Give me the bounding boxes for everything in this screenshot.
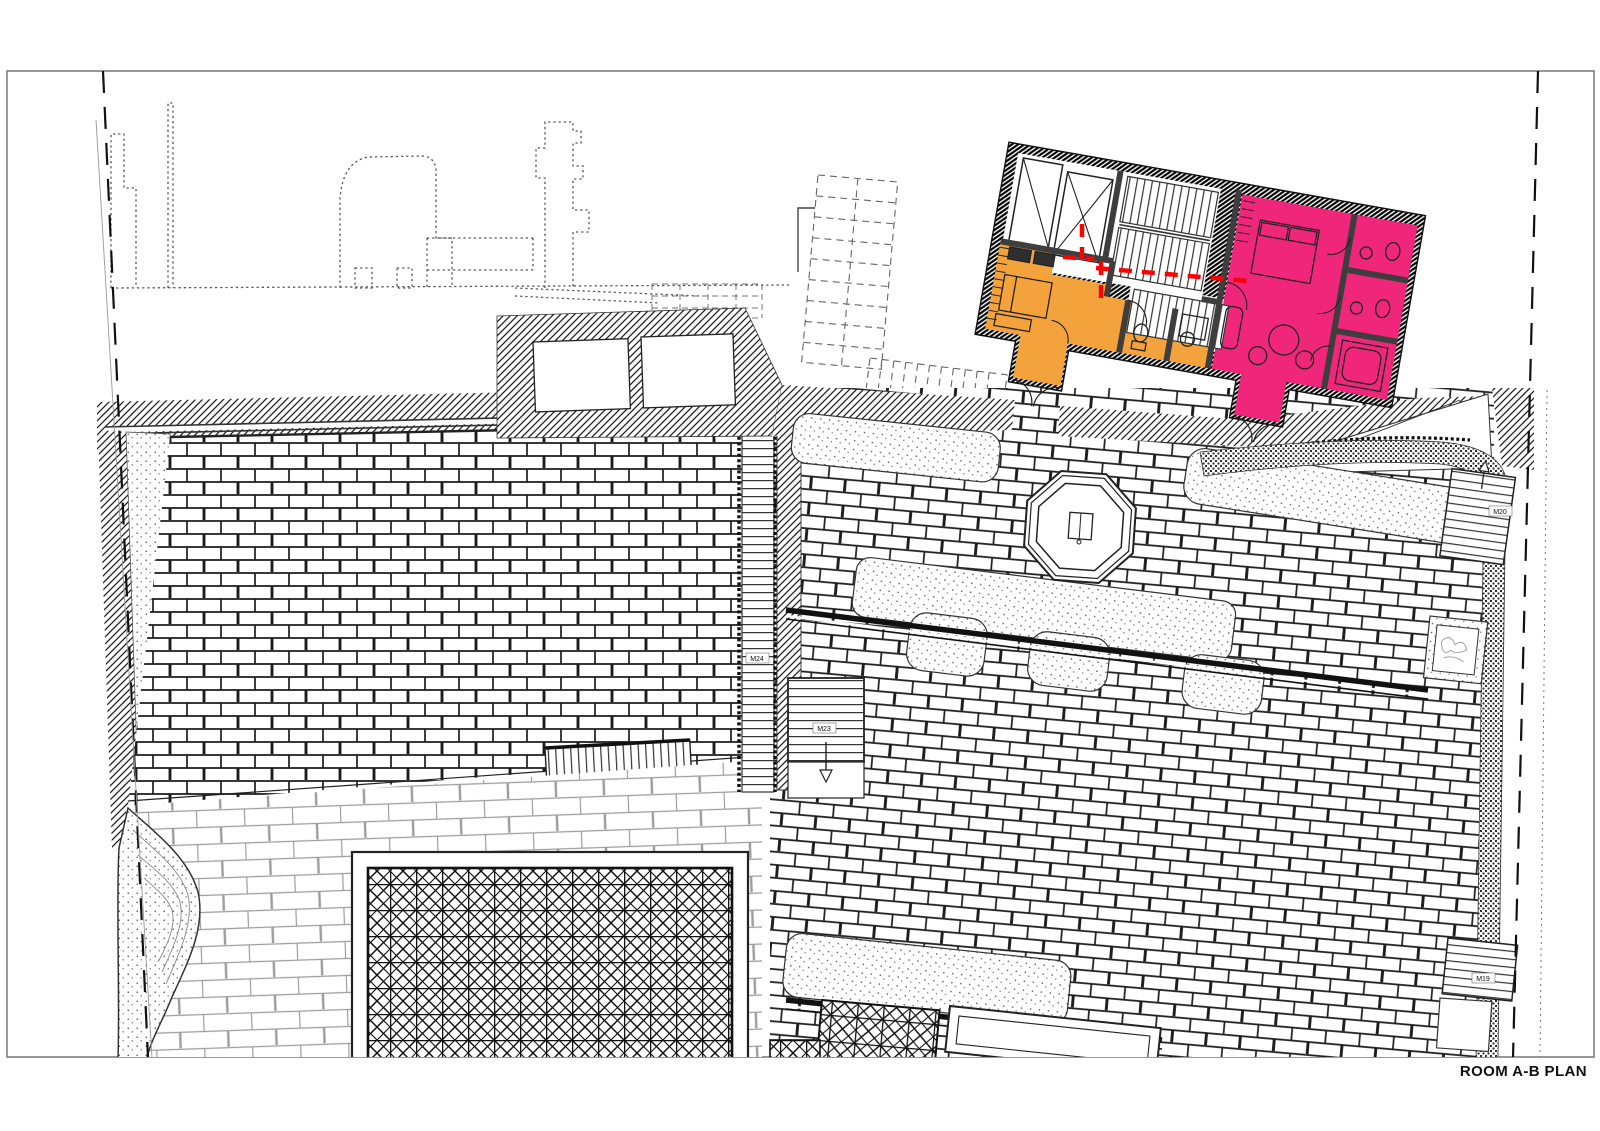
landing-box xyxy=(1437,998,1492,1052)
stair-label-m19: M19 xyxy=(1476,976,1490,983)
lattice-panel-small xyxy=(770,1040,820,1060)
stair-m23 xyxy=(788,678,864,798)
tree-planter xyxy=(1424,616,1488,684)
channel-rungs xyxy=(742,392,774,792)
stair-label-m20: M20 xyxy=(1493,509,1507,516)
plan-drawing: M24 M23 M20 M19 xyxy=(0,0,1600,1131)
lattice-panel xyxy=(817,1000,940,1068)
skylight-a xyxy=(533,339,630,412)
skylight-b xyxy=(641,334,735,408)
lower-courtyard xyxy=(118,760,762,1072)
stair-m19 xyxy=(1442,938,1517,1001)
drawing-title: ROOM A-B PLAN xyxy=(1187,1063,1587,1080)
floor-plan-sheet: M24 M23 M20 M19 ROOM A-B PLAN xyxy=(0,0,1600,1131)
skylight-lattice xyxy=(368,868,732,1072)
stair-label-m24: M24 xyxy=(750,656,764,663)
stair-label-m23: M23 xyxy=(817,726,831,733)
